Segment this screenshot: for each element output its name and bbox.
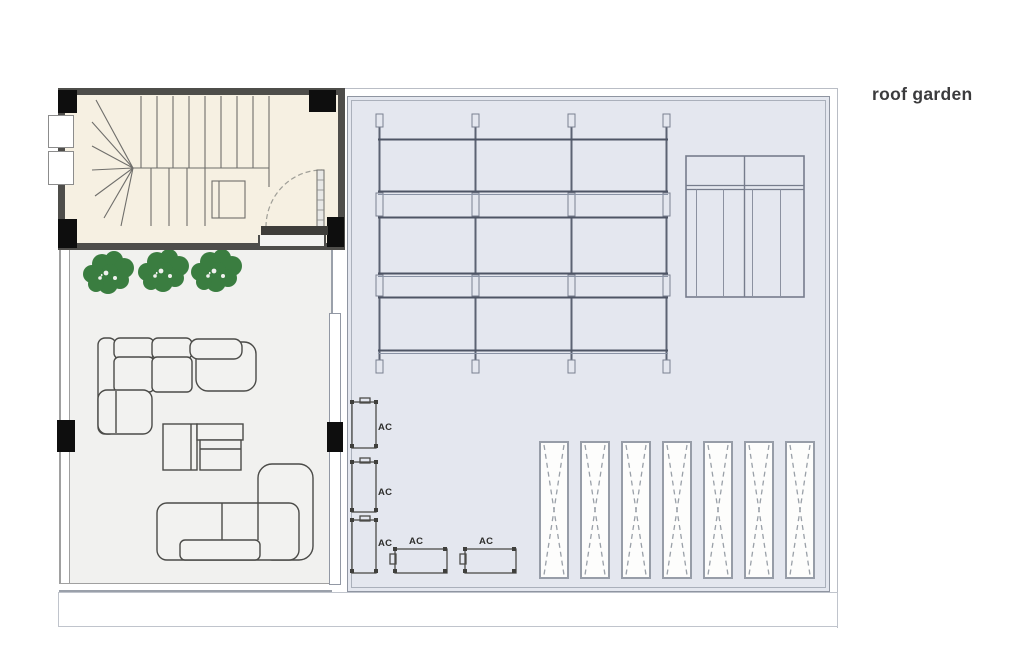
- ac-label-4: AC: [409, 536, 423, 547]
- page-title: roof garden: [872, 84, 973, 105]
- ac-label-2: AC: [378, 487, 392, 498]
- terrace-divider-line: [331, 250, 333, 314]
- floor-plan-canvas: roof garden: [0, 0, 1024, 652]
- roof-edge-ledge: [58, 592, 838, 627]
- terrace-furniture: [90, 330, 320, 565]
- ac-label-5: AC: [479, 536, 493, 547]
- parapet-right-line: [837, 88, 838, 628]
- shrub-plants: [70, 240, 270, 308]
- door-step: [258, 235, 326, 248]
- ac-label-3: AC: [378, 538, 392, 549]
- column-terrace-left: [57, 420, 75, 452]
- pergola-structure: [372, 108, 674, 380]
- parapet-top-line: [345, 88, 838, 89]
- ac-units: [345, 393, 530, 580]
- roof-bench-structure: [685, 155, 806, 299]
- door-swing-arc: [266, 170, 322, 227]
- column-divider: [327, 422, 343, 452]
- ac-label-1: AC: [378, 422, 392, 433]
- door-leaf: [317, 170, 324, 227]
- terrace-bottom-wall: [59, 583, 332, 592]
- louver-screen-panels: [535, 438, 825, 583]
- door-threshold: [261, 226, 328, 235]
